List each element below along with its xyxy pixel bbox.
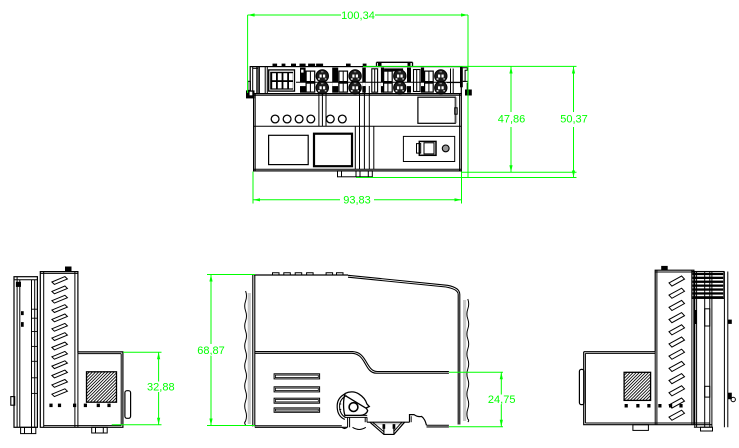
svg-text:93,83: 93,83	[343, 194, 371, 206]
svg-text:24,75: 24,75	[488, 394, 516, 406]
svg-text:32,88: 32,88	[147, 381, 175, 393]
svg-text:47,86: 47,86	[498, 114, 526, 126]
svg-text:68,87: 68,87	[197, 345, 225, 357]
svg-text:50,37: 50,37	[560, 114, 588, 126]
svg-text:100,34: 100,34	[341, 10, 375, 22]
